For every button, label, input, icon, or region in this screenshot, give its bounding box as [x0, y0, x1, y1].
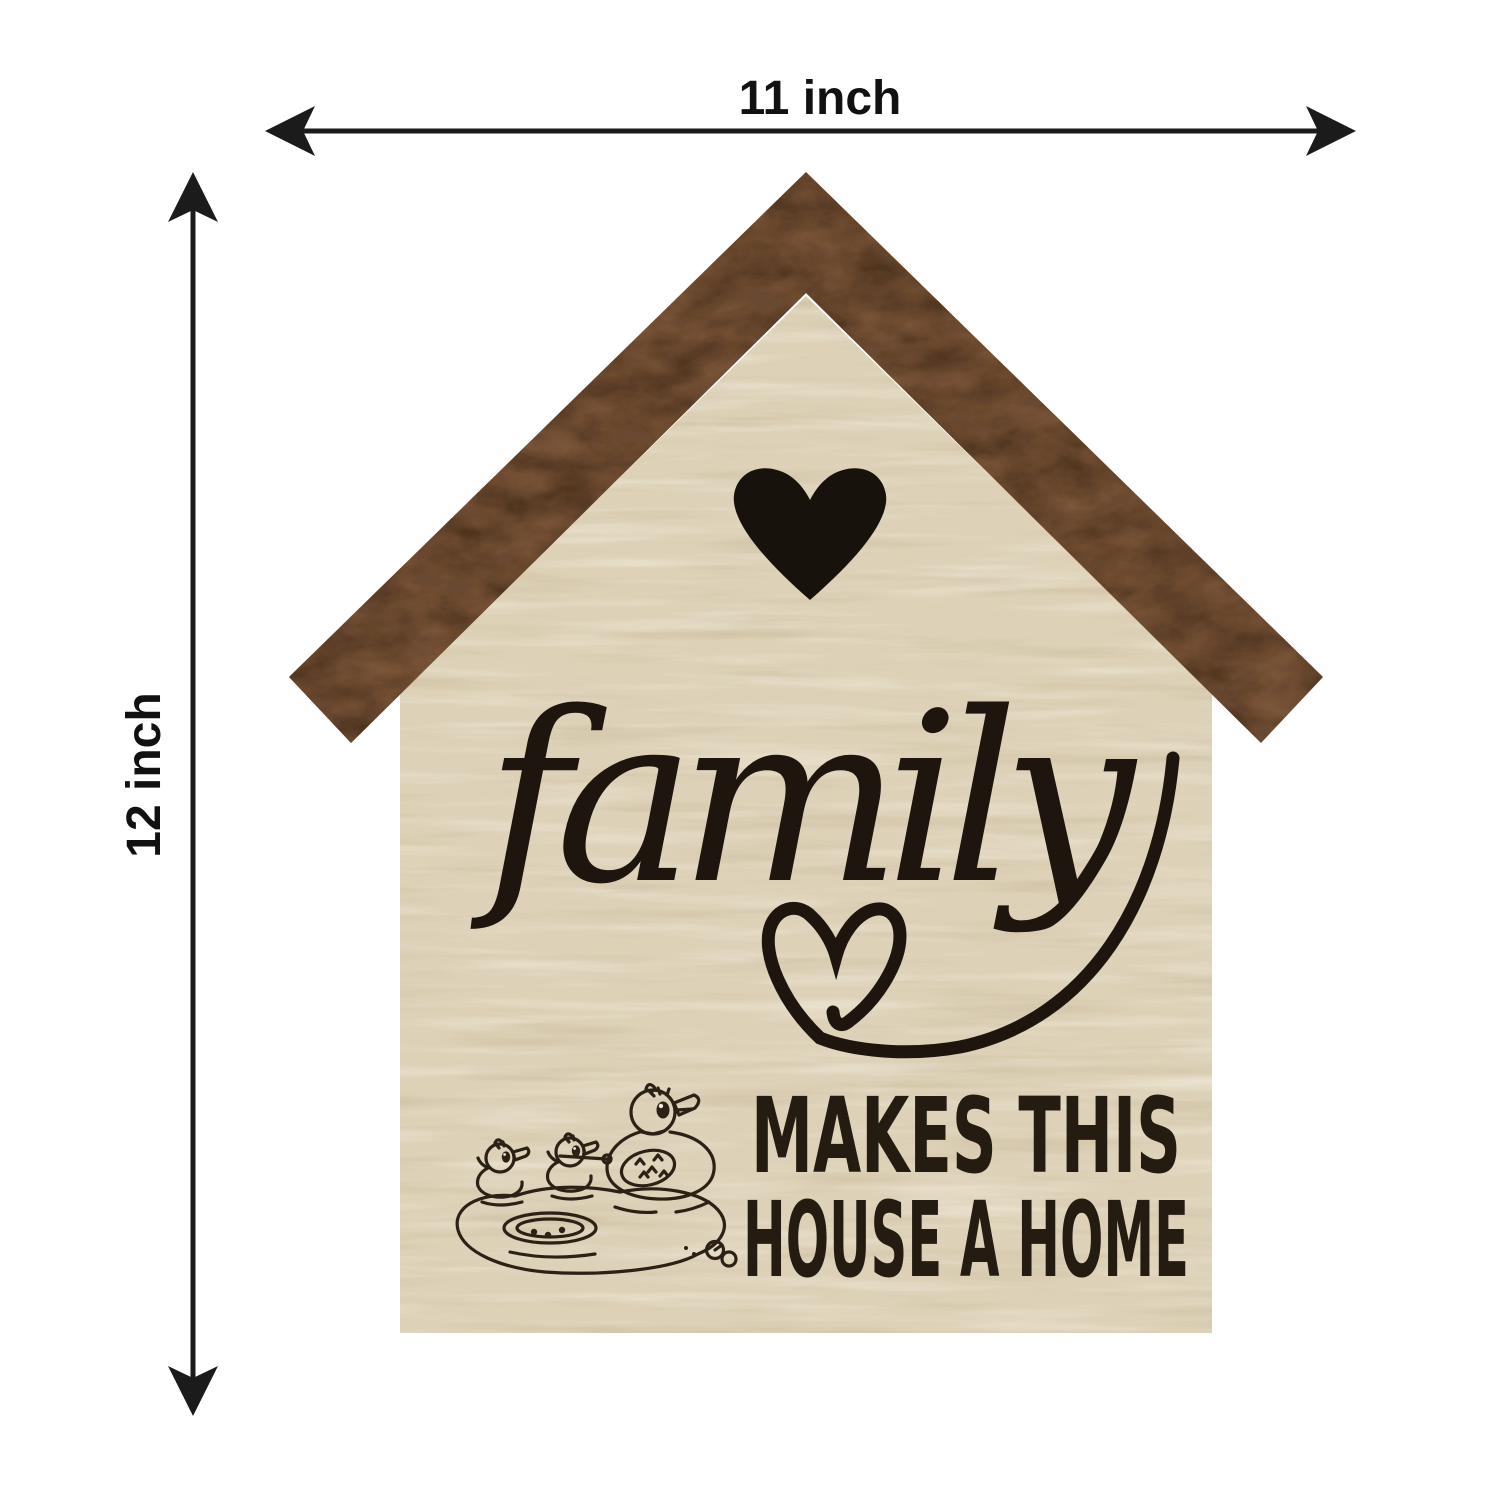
house-sign: family [289, 172, 1323, 1333]
family-script: family [470, 663, 1138, 936]
product-dimension-figure: 11 inch 12 inch family [0, 0, 1500, 1500]
width-dimension: 11 inch [265, 72, 1356, 156]
height-arrow [168, 172, 218, 1416]
height-label: 12 inch [118, 692, 171, 857]
height-dimension: 12 inch [118, 172, 218, 1416]
width-label: 11 inch [739, 72, 902, 125]
figure-svg: 11 inch 12 inch family [0, 0, 1500, 1500]
caption-line-2: HOUSE A HOME [743, 1179, 1189, 1301]
